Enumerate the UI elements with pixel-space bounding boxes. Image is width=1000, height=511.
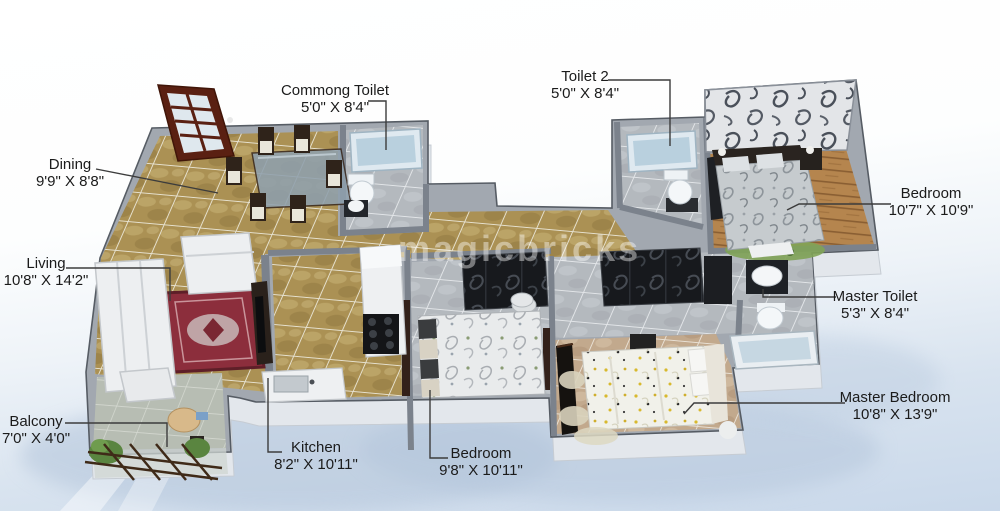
room-name: Living: [4, 255, 89, 272]
room-dims: 10'8" X 14'2": [4, 272, 89, 289]
floorplan-render: [0, 0, 1000, 511]
accent-wall: [705, 80, 856, 152]
label-commong-toilet: Commong Toilet 5'0" X 8'4": [281, 82, 389, 116]
room-dims: 5'0" X 8'4": [281, 99, 389, 116]
label-balcony: Balcony 7'0" X 4'0": [2, 413, 70, 447]
room-name: Toilet 2: [551, 68, 619, 85]
room-name: Master Bedroom: [840, 389, 951, 406]
room-name: Master Toilet: [833, 288, 918, 305]
room-name: Commong Toilet: [281, 82, 389, 99]
label-kitchen: Kitchen 8'2" X 10'11": [274, 439, 358, 473]
room-dims: 9'8" X 10'11": [439, 462, 523, 479]
room-name: Balcony: [2, 413, 70, 430]
room-dims: 10'8" X 13'9": [840, 406, 951, 423]
room-dims: 7'0" X 4'0": [2, 430, 70, 447]
room-dims: 9'9" X 8'8": [36, 173, 104, 190]
label-toilet-2: Toilet 2 5'0" X 8'4": [551, 68, 619, 102]
room-name: Dining: [36, 156, 104, 173]
room-dims: 5'0" X 8'4": [551, 85, 619, 102]
floorplan-screenshot: magicbricks Dining 9'9" X 8'8" Commong T…: [0, 0, 1000, 511]
label-living: Living 10'8" X 14'2": [4, 255, 89, 289]
label-bedroom-right: Bedroom 10'7" X 10'9": [889, 185, 974, 219]
label-master-toilet: Master Toilet 5'3" X 8'4": [833, 288, 918, 322]
room-name: Bedroom: [889, 185, 974, 202]
room-dims: 10'7" X 10'9": [889, 202, 974, 219]
room-name: Kitchen: [274, 439, 358, 456]
label-master-bedroom: Master Bedroom 10'8" X 13'9": [840, 389, 951, 423]
label-dining: Dining 9'9" X 8'8": [36, 156, 104, 190]
label-bedroom-center: Bedroom 9'8" X 10'11": [439, 445, 523, 479]
room-dims: 5'3" X 8'4": [833, 305, 918, 322]
room-name: Bedroom: [439, 445, 523, 462]
room-dims: 8'2" X 10'11": [274, 456, 358, 473]
